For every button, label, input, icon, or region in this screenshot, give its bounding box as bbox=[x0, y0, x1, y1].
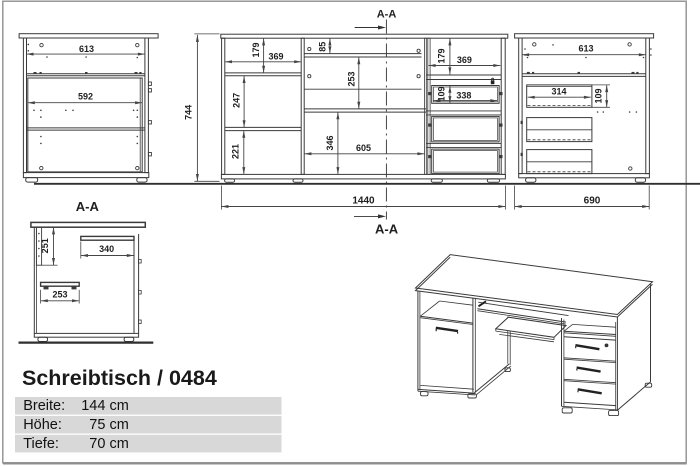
svg-text:346: 346 bbox=[325, 135, 335, 150]
svg-text:613: 613 bbox=[578, 44, 593, 54]
svg-text:247: 247 bbox=[232, 93, 242, 108]
svg-text:1440: 1440 bbox=[352, 195, 375, 206]
svg-text:613: 613 bbox=[79, 44, 94, 54]
svg-text:109: 109 bbox=[437, 86, 447, 101]
svg-text:744: 744 bbox=[183, 105, 193, 120]
svg-text:605: 605 bbox=[356, 143, 371, 153]
svg-text:369: 369 bbox=[457, 55, 472, 65]
svg-text:179: 179 bbox=[437, 48, 447, 63]
svg-text:179: 179 bbox=[251, 42, 261, 57]
svg-text:251: 251 bbox=[40, 238, 50, 253]
svg-text:690: 690 bbox=[584, 195, 601, 206]
svg-text:Schreibtisch / 0484: Schreibtisch / 0484 bbox=[22, 366, 217, 390]
svg-text:75 cm: 75 cm bbox=[89, 417, 129, 433]
svg-text:338: 338 bbox=[456, 91, 471, 101]
svg-text:Breite:: Breite: bbox=[23, 398, 65, 414]
svg-text:Höhe:: Höhe: bbox=[23, 417, 62, 433]
svg-text:70 cm: 70 cm bbox=[89, 436, 129, 452]
svg-text:253: 253 bbox=[52, 290, 67, 300]
svg-text:Tiefe:: Tiefe: bbox=[23, 436, 59, 452]
svg-text:A-A: A-A bbox=[377, 9, 397, 21]
svg-text:85: 85 bbox=[317, 42, 327, 52]
svg-text:A-A: A-A bbox=[76, 199, 100, 214]
svg-text:109: 109 bbox=[594, 88, 604, 103]
svg-text:314: 314 bbox=[551, 87, 566, 97]
svg-text:369: 369 bbox=[268, 52, 283, 62]
svg-text:144 cm: 144 cm bbox=[81, 398, 129, 414]
svg-text:592: 592 bbox=[78, 92, 93, 102]
svg-text:253: 253 bbox=[346, 71, 356, 86]
svg-text:340: 340 bbox=[99, 244, 114, 254]
svg-text:221: 221 bbox=[230, 144, 240, 159]
svg-text:A-A: A-A bbox=[375, 221, 399, 236]
